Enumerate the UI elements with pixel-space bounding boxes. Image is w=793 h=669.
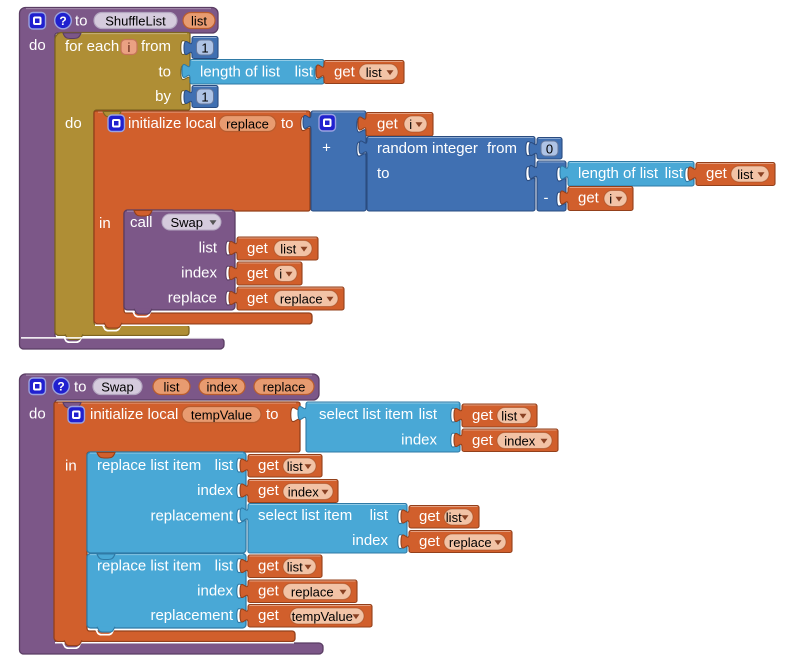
svg-text:1: 1 <box>201 41 208 56</box>
svg-text:replace: replace <box>168 290 217 307</box>
svg-text:list: list <box>366 65 382 80</box>
svg-text:index: index <box>197 583 233 600</box>
svg-text:do: do <box>29 37 46 54</box>
svg-text:?: ? <box>59 14 66 28</box>
svg-text:tempValue: tempValue <box>191 408 252 423</box>
svg-text:to: to <box>75 13 88 30</box>
svg-text:list: list <box>737 167 753 182</box>
svg-text:list: list <box>199 240 218 257</box>
svg-text:tempValue: tempValue <box>292 609 353 624</box>
svg-text:index: index <box>181 265 217 282</box>
svg-text:replace: replace <box>280 292 323 307</box>
svg-text:ShuffleList: ShuffleList <box>105 14 166 29</box>
svg-text:get: get <box>258 558 280 575</box>
svg-text:index: index <box>352 532 388 549</box>
svg-text:replacement: replacement <box>150 607 233 624</box>
svg-text:in: in <box>65 458 77 475</box>
svg-text:1: 1 <box>201 90 208 105</box>
svg-text:i: i <box>409 117 412 132</box>
svg-text:replace: replace <box>449 535 492 550</box>
svg-text:get: get <box>258 482 280 499</box>
svg-text:index: index <box>401 432 437 449</box>
svg-text:list: list <box>287 459 303 474</box>
svg-text:list: list <box>295 64 314 81</box>
svg-text:length of list: length of list <box>200 64 281 81</box>
svg-text:to: to <box>158 64 171 81</box>
svg-text:get: get <box>706 165 728 182</box>
svg-text:list: list <box>191 14 207 29</box>
svg-text:select list item: select list item <box>258 507 352 524</box>
svg-text:list: list <box>419 406 438 423</box>
svg-text:index: index <box>206 380 238 395</box>
svg-text:get: get <box>258 607 280 624</box>
svg-text:random integer: random integer <box>377 140 478 157</box>
svg-text:replace: replace <box>263 380 306 395</box>
svg-text:list: list <box>446 510 462 525</box>
svg-text:replace: replace <box>291 585 334 600</box>
svg-text:index: index <box>288 485 320 500</box>
svg-text:to: to <box>74 379 87 396</box>
svg-text:get: get <box>247 290 269 307</box>
svg-text:get: get <box>247 240 269 257</box>
svg-text:get: get <box>472 407 494 424</box>
svg-text:list: list <box>280 242 296 257</box>
svg-text:replace: replace <box>226 117 269 132</box>
svg-text:list: list <box>164 380 180 395</box>
svg-text:i: i <box>128 40 131 55</box>
svg-text:in: in <box>99 215 111 232</box>
svg-text:0: 0 <box>546 142 553 157</box>
svg-text:length of list: length of list <box>578 165 659 182</box>
svg-text:to: to <box>266 406 279 423</box>
svg-text:list: list <box>501 409 517 424</box>
svg-text:call: call <box>130 214 153 231</box>
svg-text:do: do <box>65 115 82 132</box>
svg-text:Swap: Swap <box>170 215 203 230</box>
svg-text:index: index <box>504 434 536 449</box>
svg-text:replacement: replacement <box>150 508 233 525</box>
svg-text:list: list <box>215 558 234 575</box>
svg-text:i: i <box>279 267 282 282</box>
svg-text:from: from <box>141 38 171 55</box>
svg-text:get: get <box>247 265 269 282</box>
svg-text:select list item: select list item <box>319 406 413 423</box>
svg-text:list: list <box>287 560 303 575</box>
svg-text:do: do <box>29 406 46 423</box>
svg-text:get: get <box>578 190 600 207</box>
svg-text:to: to <box>281 115 294 132</box>
svg-text:index: index <box>197 482 233 499</box>
svg-text:get: get <box>258 583 280 600</box>
svg-text:initialize local: initialize local <box>128 115 216 132</box>
svg-text:replace list item: replace list item <box>97 558 201 575</box>
svg-text:get: get <box>419 533 441 550</box>
svg-text:get: get <box>472 432 494 449</box>
svg-text:-: - <box>544 190 549 207</box>
svg-text:list: list <box>215 457 234 474</box>
svg-text:+: + <box>322 140 331 157</box>
svg-text:get: get <box>334 64 356 81</box>
svg-text:replace list item: replace list item <box>97 457 201 474</box>
svg-text:from: from <box>487 140 517 157</box>
svg-text:initialize local: initialize local <box>90 406 178 423</box>
svg-text:Swap: Swap <box>101 380 134 395</box>
svg-text:by: by <box>155 88 171 105</box>
svg-text:get: get <box>377 116 399 133</box>
svg-text:to: to <box>377 165 390 182</box>
svg-text:get: get <box>258 457 280 474</box>
svg-text:list: list <box>665 165 684 182</box>
svg-text:?: ? <box>57 380 64 394</box>
svg-text:i: i <box>609 192 612 207</box>
svg-text:for each: for each <box>65 38 119 55</box>
svg-text:list: list <box>370 507 389 524</box>
svg-text:get: get <box>419 508 441 525</box>
